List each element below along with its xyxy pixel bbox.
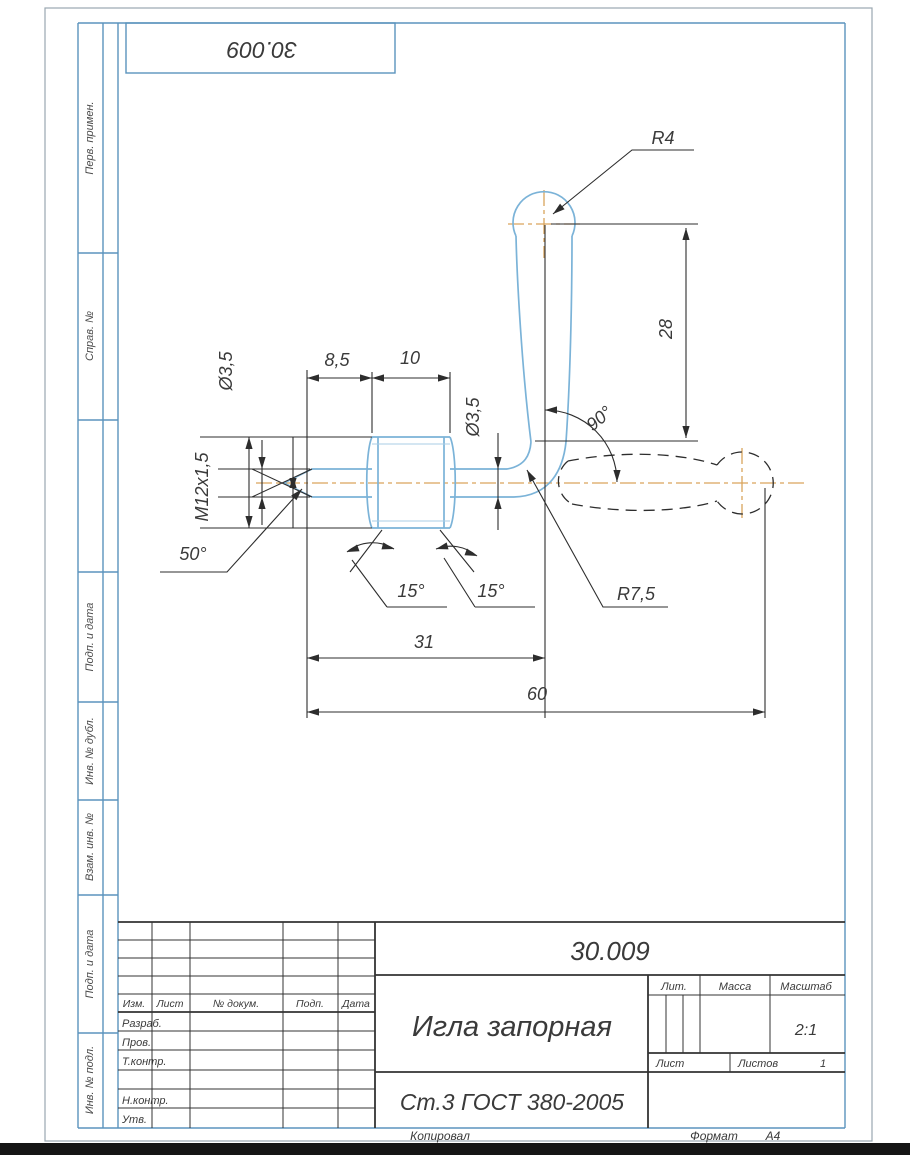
- footer-format-label: Формат: [690, 1129, 738, 1143]
- titleblock-sheets-value: 1: [820, 1058, 826, 1070]
- dim-label-28: 28: [656, 319, 676, 340]
- role-prov: Пров.: [122, 1037, 151, 1049]
- margin-label-vzam-inv: Взам. инв. №: [84, 813, 96, 881]
- role-utv: Утв.: [121, 1114, 147, 1126]
- top-stamp-number: 30.009: [227, 37, 298, 63]
- title-block: 30.009 Игла запорная Ст.3 ГОСТ 380-2005 …: [118, 922, 845, 1128]
- scan-edge-bar: [0, 1143, 910, 1155]
- dim-label-dia-right: Ø3,5: [463, 397, 483, 438]
- rev-header-list: Лист: [155, 998, 183, 1010]
- margin-label-inv-podl: Инв. № подл.: [84, 1046, 96, 1114]
- margin-label-podp-data-1: Подп. и дата: [84, 603, 96, 672]
- margin-label-podp-data-2: Подп. и дата: [84, 930, 96, 999]
- dim-label-15deg-right: 15°: [477, 581, 504, 601]
- sheet-frame: [78, 23, 845, 1128]
- role-razrab: Разраб.: [122, 1018, 162, 1030]
- rev-header-data: Дата: [341, 998, 370, 1010]
- footer-copied: Копировал: [410, 1129, 470, 1143]
- dim-label-90deg: 90°: [582, 402, 616, 435]
- rev-header-docnum: № докум.: [213, 998, 259, 1010]
- titleblock-header-sheet: Лист: [655, 1058, 684, 1070]
- rev-header-podp: Подп.: [296, 998, 324, 1010]
- role-tkontr: Т.контр.: [122, 1056, 166, 1068]
- dim-label-8-5: 8,5: [324, 350, 350, 370]
- top-stamp: 30.009: [126, 23, 395, 73]
- dim-label-50deg: 50°: [179, 544, 206, 564]
- role-nkontr: Н.контр.: [122, 1095, 169, 1107]
- sheet-border: [0, 8, 910, 1155]
- titleblock-material: Ст.3 ГОСТ 380-2005: [400, 1089, 624, 1115]
- dim-label-15deg-left: 15°: [397, 581, 424, 601]
- titleblock-header-scale: Масштаб: [780, 981, 832, 993]
- titleblock-scale-value: 2:1: [794, 1022, 817, 1039]
- margin-label-inv-dubl: Инв. № дубл.: [84, 717, 96, 785]
- titleblock-header-mass: Масса: [719, 981, 752, 993]
- dim-label-r4: R4: [651, 128, 674, 148]
- margin-label-perv-primen: Перв. примен.: [84, 101, 96, 174]
- footer-format-value: А4: [765, 1129, 781, 1143]
- titleblock-part-name: Игла запорная: [412, 1011, 612, 1043]
- dimension-arrows: [245, 204, 765, 716]
- dimension-labels: R4 28 8,5 10 Ø3,5 M12x1,5 Ø3,5 50° 15° 1…: [179, 128, 676, 704]
- drawing-sheet: Перв. примен. Справ. № Подп. и дата Инв.…: [0, 0, 910, 1155]
- titleblock-doc-number: 30.009: [570, 936, 650, 966]
- margin-label-sprav: Справ. №: [84, 311, 96, 361]
- titleblock-header-lit: Лит.: [660, 981, 687, 993]
- dim-label-r7-5: R7,5: [617, 584, 656, 604]
- rev-header-izm: Изм.: [123, 998, 145, 1010]
- dim-label-dia-left: Ø3,5: [216, 351, 236, 392]
- titleblock-header-sheets: Листов: [737, 1058, 778, 1070]
- part-drawing: R4 28 8,5 10 Ø3,5 M12x1,5 Ø3,5 50° 15° 1…: [160, 128, 806, 718]
- dim-label-60: 60: [527, 684, 547, 704]
- dim-label-10: 10: [400, 348, 420, 368]
- dim-label-31: 31: [414, 632, 434, 652]
- dim-label-thread: M12x1,5: [192, 451, 212, 521]
